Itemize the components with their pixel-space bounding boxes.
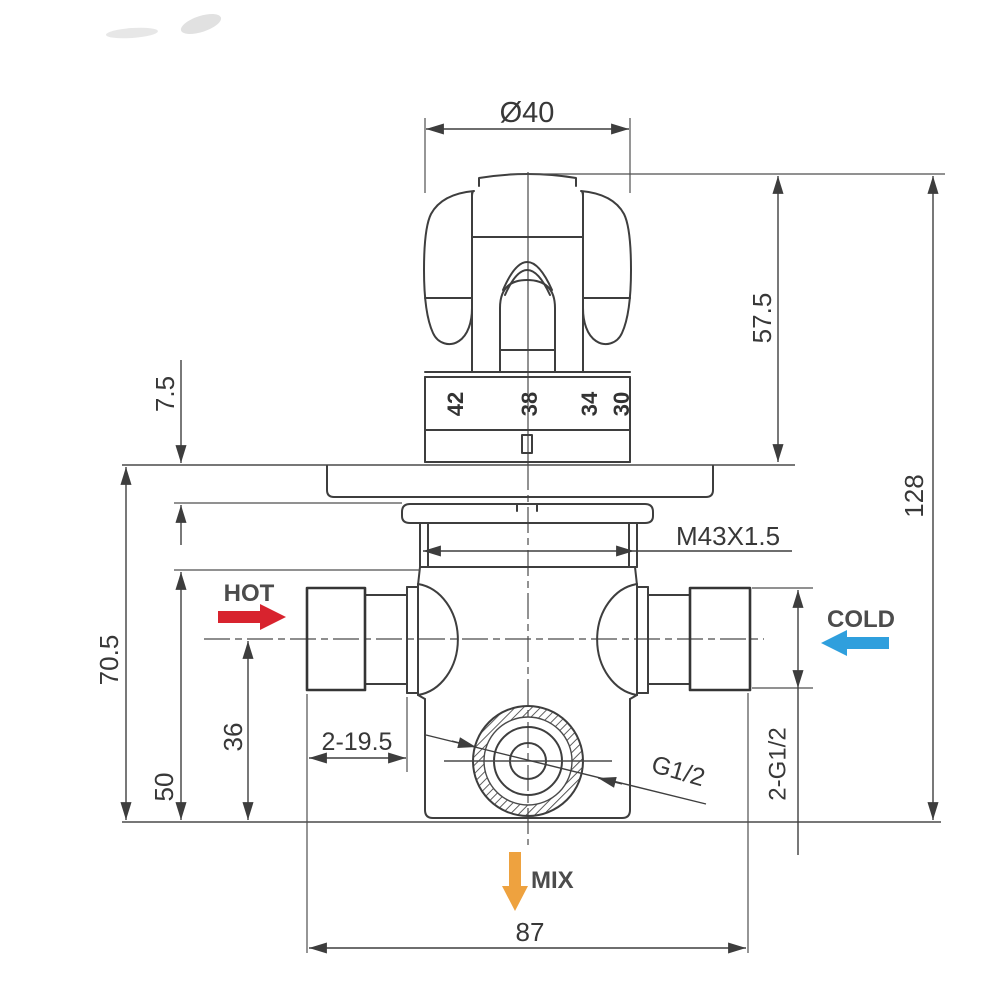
hot-label: HOT bbox=[224, 580, 275, 607]
dim-inlet-spacing: 87 bbox=[516, 917, 545, 947]
mix-label: MIX bbox=[531, 867, 574, 894]
hot-arrow-icon bbox=[218, 604, 286, 630]
mix-outlet bbox=[444, 699, 612, 823]
temperature-ring: 42 38 34 30 bbox=[425, 377, 634, 462]
flow-annotations: HOT COLD MIX bbox=[218, 580, 895, 911]
extension-lines bbox=[122, 118, 945, 953]
dim-inlet-threads: 2-G1/2 bbox=[764, 727, 791, 800]
drawing-page: 42 38 34 30 bbox=[0, 0, 1001, 1001]
dim-outlet-thread: G1/2 bbox=[648, 750, 708, 792]
dim-overall-height: 128 bbox=[899, 474, 929, 517]
dim-outlet-offset: 36 bbox=[218, 723, 248, 752]
knob-right-lobe bbox=[581, 191, 631, 344]
scan-smudge bbox=[106, 10, 224, 40]
temp-mark-42: 42 bbox=[443, 392, 468, 416]
knob-left-lobe bbox=[424, 191, 474, 344]
dim-knob-diameter: Ø40 bbox=[500, 97, 555, 129]
cold-arrow-icon bbox=[821, 630, 889, 656]
dim-body-depth: 50 bbox=[149, 773, 179, 802]
dim-inlet-depth: 2-19.5 bbox=[322, 728, 393, 756]
dim-escutcheon-thread: M43X1.5 bbox=[676, 521, 780, 551]
cold-label: COLD bbox=[827, 606, 895, 633]
temp-mark-38: 38 bbox=[517, 392, 542, 416]
dim-plate-to-base: 70.5 bbox=[94, 635, 124, 686]
temp-mark-34: 34 bbox=[577, 391, 602, 416]
scale-index-mark bbox=[522, 435, 532, 453]
dim-plate-thickness: 7.5 bbox=[150, 376, 180, 412]
temp-mark-30: 30 bbox=[609, 392, 634, 416]
wall-plate bbox=[122, 465, 795, 523]
technical-drawing-canvas: 42 38 34 30 bbox=[0, 0, 1001, 1001]
dim-handle-height: 57.5 bbox=[747, 293, 777, 344]
mix-arrow-icon bbox=[502, 852, 528, 911]
